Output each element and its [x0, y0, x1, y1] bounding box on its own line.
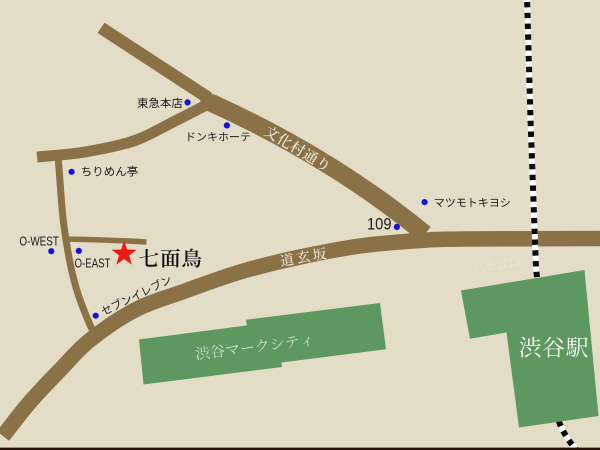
svg-text:109: 109	[367, 215, 392, 234]
svg-text:O-WEST: O-WEST	[19, 234, 59, 248]
svg-text:O-EAST: O-EAST	[75, 256, 111, 270]
